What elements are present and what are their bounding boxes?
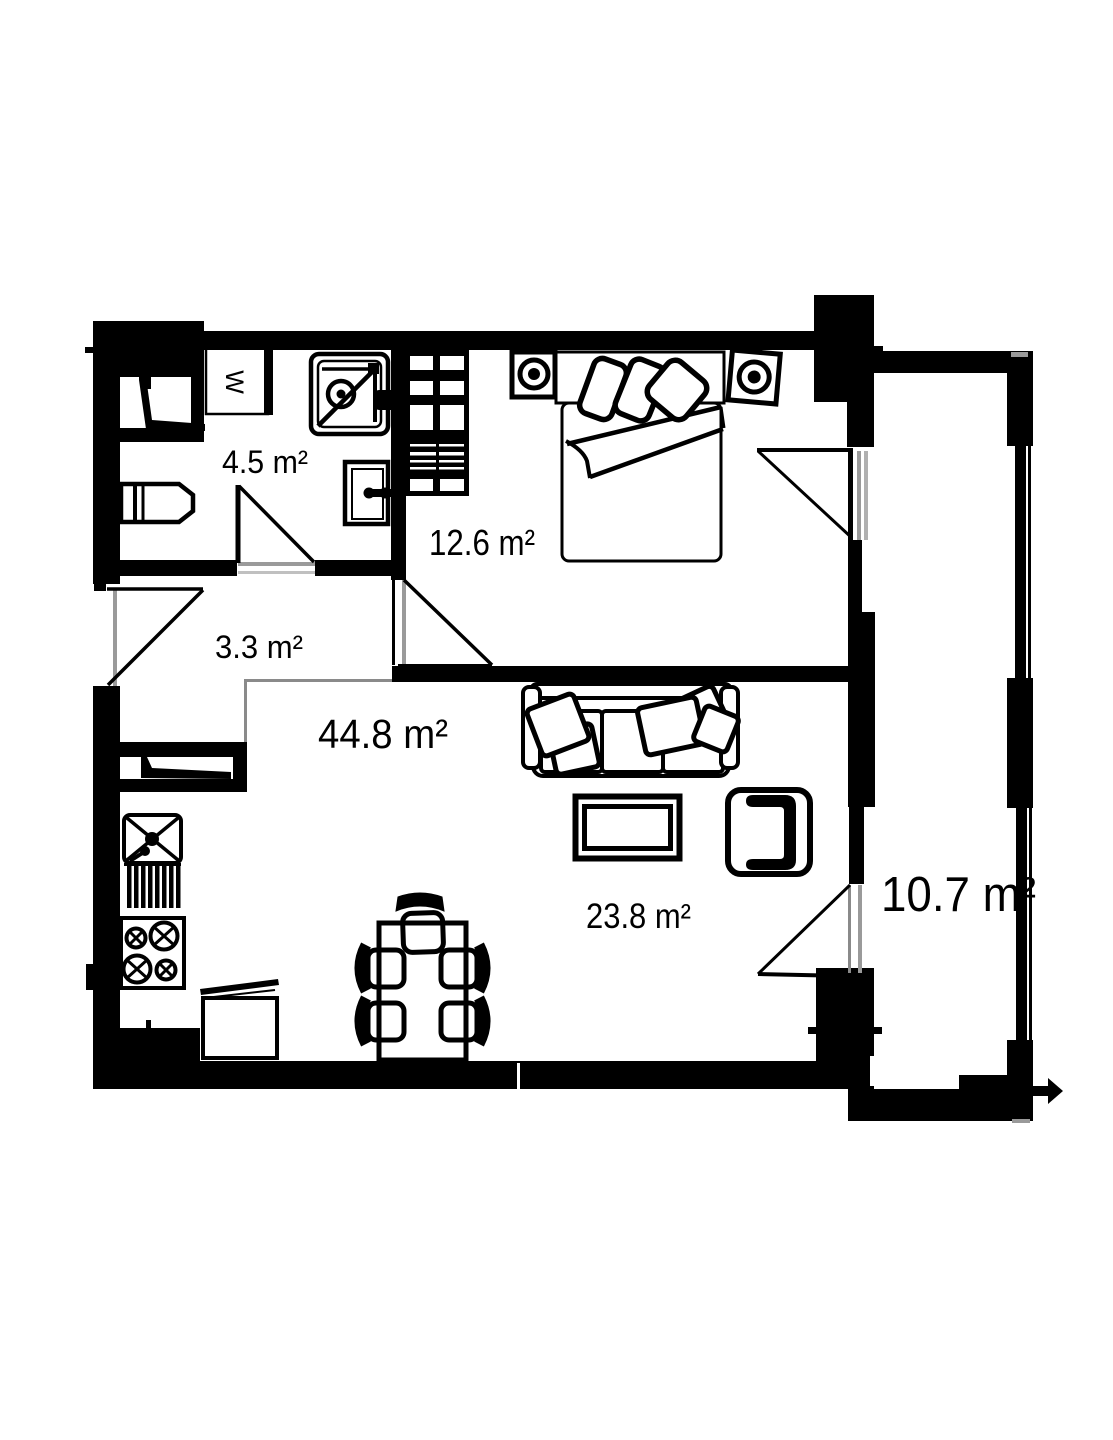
svg-text:10.7 m²: 10.7 m² (881, 868, 1036, 922)
svg-text:12.6 m²: 12.6 m² (429, 522, 535, 563)
svg-text:W: W (220, 370, 248, 394)
svg-text:44.8 m²: 44.8 m² (318, 711, 448, 757)
svg-text:23.8 m²: 23.8 m² (586, 897, 691, 936)
svg-text:3.3 m²: 3.3 m² (215, 629, 303, 665)
svg-text:4.5 m²: 4.5 m² (222, 444, 308, 480)
